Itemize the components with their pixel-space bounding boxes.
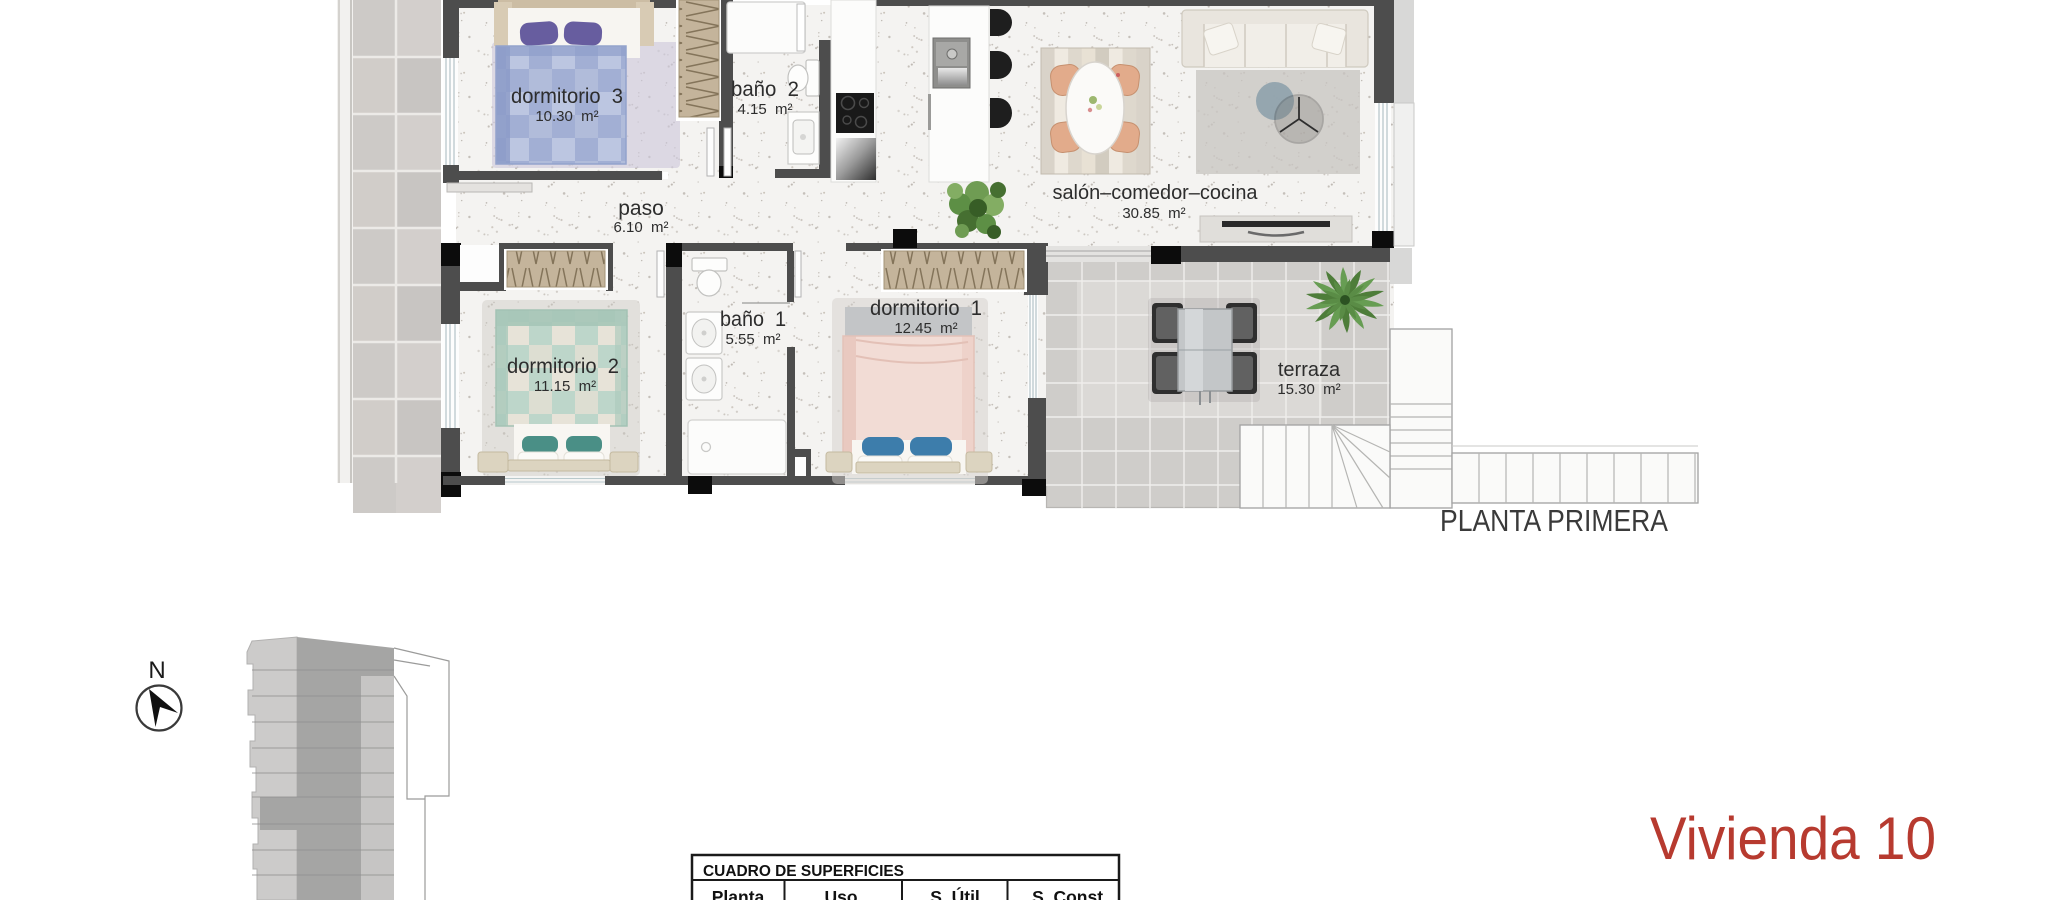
svg-text:PLANTA PRIMERA: PLANTA PRIMERA [1440, 503, 1668, 538]
svg-text:baño 2: baño 2 [731, 78, 799, 101]
svg-text:4.15 m²: 4.15 m² [737, 101, 792, 118]
svg-text:paso: paso [618, 197, 664, 220]
svg-text:6.10 m²: 6.10 m² [613, 219, 668, 236]
svg-text:12.45 m²: 12.45 m² [894, 320, 957, 337]
svg-text:baño 1: baño 1 [720, 308, 786, 331]
svg-text:dormitorio 3: dormitorio 3 [511, 85, 623, 108]
svg-text:terraza: terraza [1278, 359, 1341, 381]
svg-text:salón–comedor–cocina: salón–comedor–cocina [1053, 182, 1259, 204]
svg-text:30.85 m²: 30.85 m² [1122, 205, 1185, 222]
svg-text:dormitorio 2: dormitorio 2 [507, 355, 619, 378]
svg-text:Uso: Uso [824, 887, 857, 900]
svg-text:10.30 m²: 10.30 m² [535, 108, 598, 125]
svg-text:Vivienda 10: Vivienda 10 [1650, 805, 1936, 872]
svg-text:S. Útil: S. Útil [930, 886, 980, 900]
svg-text:N: N [148, 657, 165, 684]
svg-text:15.30 m²: 15.30 m² [1277, 381, 1340, 398]
svg-text:Planta: Planta [712, 887, 765, 900]
svg-text:S. Const.: S. Const. [1032, 887, 1108, 900]
svg-text:5.55 m²: 5.55 m² [725, 331, 780, 348]
svg-text:dormitorio 1: dormitorio 1 [870, 297, 982, 320]
svg-text:11.15 m²: 11.15 m² [534, 378, 596, 395]
svg-text:CUADRO DE SUPERFICIES: CUADRO DE SUPERFICIES [703, 863, 904, 880]
